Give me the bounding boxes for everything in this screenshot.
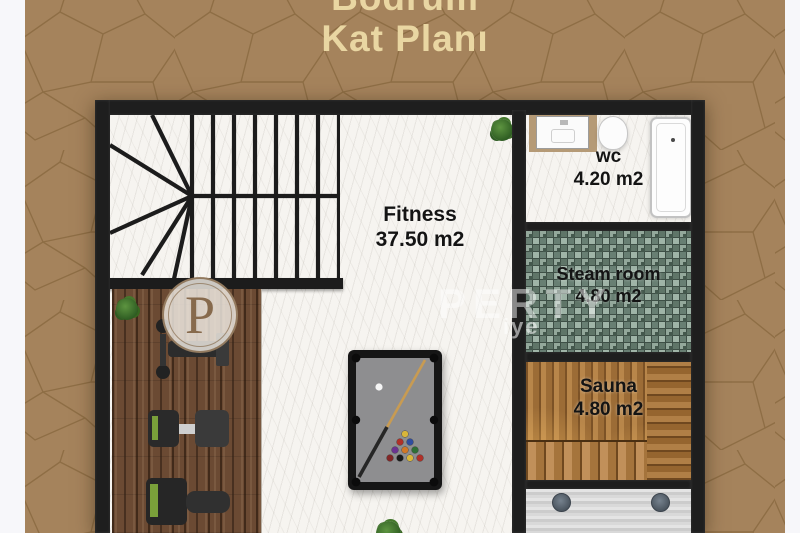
wall-top [95,100,705,115]
wall-steam-sauna [526,352,691,362]
sauna-room-label: Sauna 4.80 m2 [526,376,691,422]
watermark-logo-ring [168,283,232,347]
round-seat [651,493,670,512]
sauna-area: 4.80 m2 [526,399,691,422]
toilet [598,116,628,150]
wc-area: 4.20 m2 [526,169,691,192]
fitness-room-label: Fitness 37.50 m2 [330,202,510,252]
floor-plan-photo: Bodrum Kat Planı [25,0,785,533]
watermark-logo: P [162,277,238,353]
title-line-1: Bodrum [25,0,785,19]
watermark-small-text: iye [503,314,540,340]
wall-left [95,100,110,533]
screenshot-page: Bodrum Kat Planı [0,0,800,533]
wall-wc-steam [526,222,691,231]
sink-bowl [551,129,575,143]
title-line-2: Kat Planı [25,18,785,60]
wc-name: wc [526,146,691,169]
fitness-area: 37.50 m2 [330,227,510,252]
sink [536,116,589,149]
plant-icon [116,298,138,320]
wall-sauna-shower [526,480,691,489]
plant-icon [376,521,401,533]
bathtub-drain [671,138,675,142]
sink-faucet [560,120,568,125]
staircase [110,115,340,279]
fitness-name: Fitness [330,202,510,227]
plant-icon [491,119,513,141]
wall-right [691,100,705,533]
sauna-bench [526,440,647,480]
shower-area [526,489,691,533]
round-seat [552,493,571,512]
wc-room-label: wc 4.20 m2 [526,146,691,192]
pool-table [348,350,442,490]
sauna-name: Sauna [526,376,691,399]
